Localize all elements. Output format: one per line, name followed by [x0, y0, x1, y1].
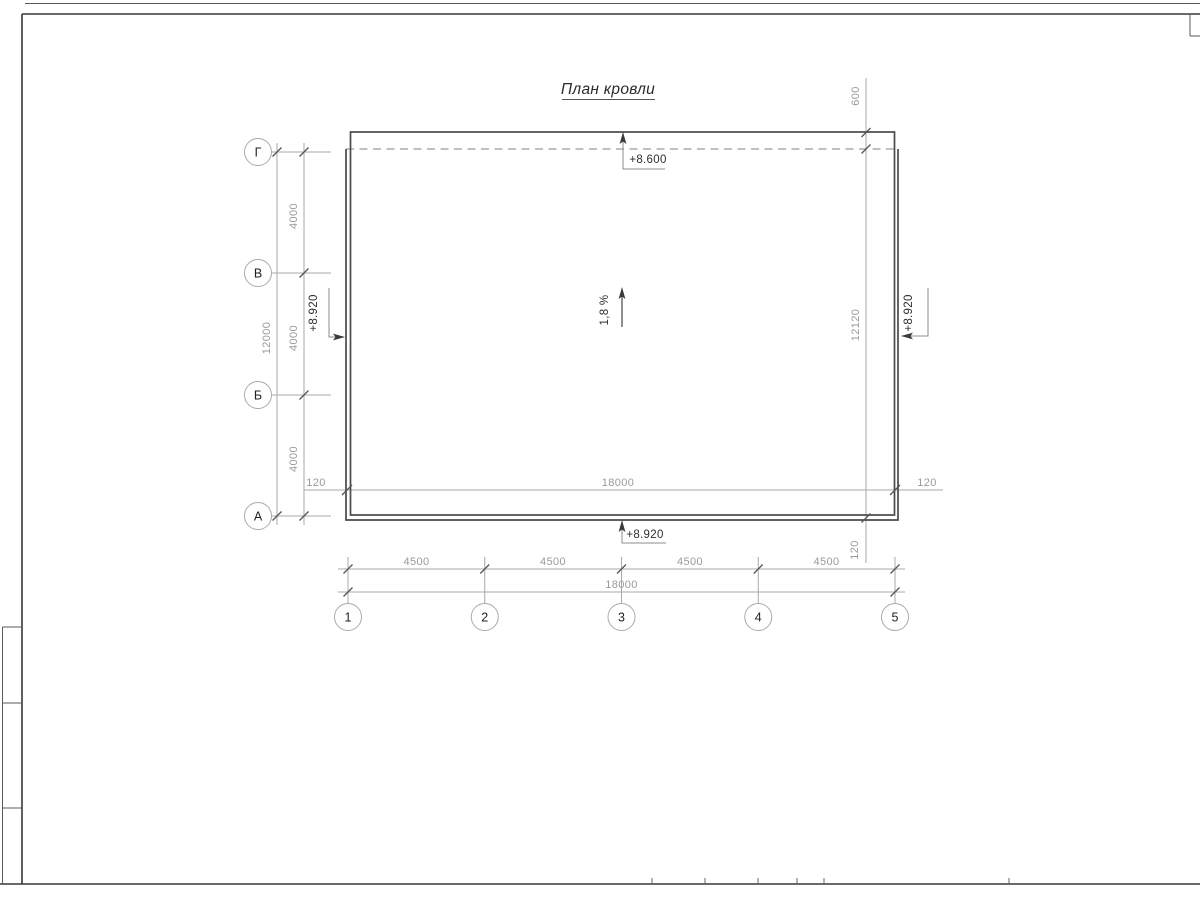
slope-mark: 1,8 %	[599, 287, 625, 327]
margin-filing-boxes	[3, 627, 23, 884]
elevation-left-value: +8.920	[308, 294, 320, 331]
elevation-mark-bottom: +8.920	[619, 520, 666, 543]
dim-row-spacing-1: 4000	[288, 203, 300, 229]
dim-col-spacing-4: 4500	[813, 556, 839, 568]
col-axis-3: 3	[608, 604, 635, 631]
elevation-top-value: +8.600	[629, 154, 666, 166]
col-axis-label: 4	[755, 611, 762, 625]
row-axis-label: Г	[255, 146, 262, 160]
dimension-lines	[272, 78, 944, 604]
roof-plan-drawing: План кровли	[0, 0, 1200, 900]
elevation-bottom-value: +8.920	[626, 529, 663, 541]
dim-overhang-bottom: 120	[849, 540, 861, 560]
col-axis-2: 2	[471, 604, 498, 631]
col-axis-4: 4	[745, 604, 772, 631]
col-axis-label: 3	[618, 611, 625, 625]
col-axis-1: 1	[335, 604, 362, 631]
dimension-ticks	[273, 128, 901, 597]
dim-col-spacing-1: 4500	[403, 556, 429, 568]
row-axis-a: А	[245, 503, 272, 530]
dim-roof-width: 18000	[602, 477, 635, 489]
drawing-title: План кровли	[561, 81, 655, 98]
dim-overhang-left: 120	[306, 477, 326, 489]
row-axis-label: А	[254, 510, 263, 524]
dim-roof-depth: 12120	[850, 309, 862, 342]
elevation-mark-top: +8.600	[620, 132, 667, 169]
col-axis-label: 2	[481, 611, 488, 625]
row-axis-b: Б	[245, 382, 272, 409]
slope-value: 1,8 %	[599, 295, 611, 326]
dim-cols-total: 18000	[605, 579, 638, 591]
col-axis-label: 1	[345, 611, 352, 625]
column-axis-markers: 1 2 3 4 5	[335, 604, 909, 631]
elevation-mark-right: +8.920	[901, 288, 928, 339]
dim-row-spacing-2: 4000	[288, 325, 300, 351]
dim-row-spacing-3: 4000	[288, 446, 300, 472]
elevation-mark-left: +8.920	[308, 288, 345, 340]
col-axis-5: 5	[882, 604, 909, 631]
row-axis-v: В	[245, 260, 272, 287]
frame-corner-box	[1190, 14, 1200, 36]
elevation-right-value: +8.920	[903, 294, 915, 331]
title-block-top-stubs	[652, 878, 1009, 884]
dim-col-spacing-2: 4500	[540, 556, 566, 568]
dim-parapet-top: 600	[850, 86, 862, 106]
dim-rows-total: 12000	[261, 322, 273, 355]
dim-col-spacing-3: 4500	[677, 556, 703, 568]
sheet-border	[0, 4, 1200, 885]
col-axis-label: 5	[892, 611, 899, 625]
row-axis-label: Б	[254, 389, 262, 403]
row-axis-g: Г	[245, 139, 272, 166]
dim-overhang-right: 120	[917, 477, 937, 489]
drawing-sheet: План кровли	[0, 0, 1200, 900]
row-axis-label: В	[254, 267, 262, 281]
